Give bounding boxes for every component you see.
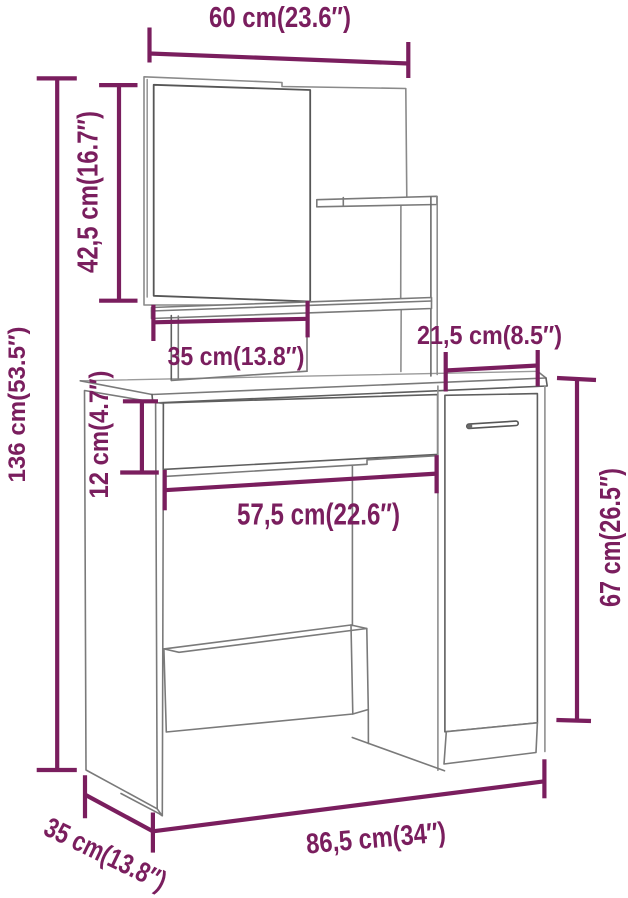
svg-text:60 cm(23.6″): 60 cm(23.6″) — [209, 2, 351, 34]
svg-text:35 cm(13.8″): 35 cm(13.8″) — [168, 341, 305, 371]
svg-text:67 cm(26.5″): 67 cm(26.5″) — [595, 468, 627, 607]
svg-text:12 cm(4.7″): 12 cm(4.7″) — [84, 371, 114, 499]
svg-text:21,5 cm(8.5″): 21,5 cm(8.5″) — [417, 320, 562, 350]
svg-text:136 cm(53.5″): 136 cm(53.5″) — [4, 327, 31, 483]
svg-text:42,5 cm(16.7″): 42,5 cm(16.7″) — [72, 111, 104, 273]
svg-text:57,5 cm(22.6″): 57,5 cm(22.6″) — [237, 497, 400, 532]
